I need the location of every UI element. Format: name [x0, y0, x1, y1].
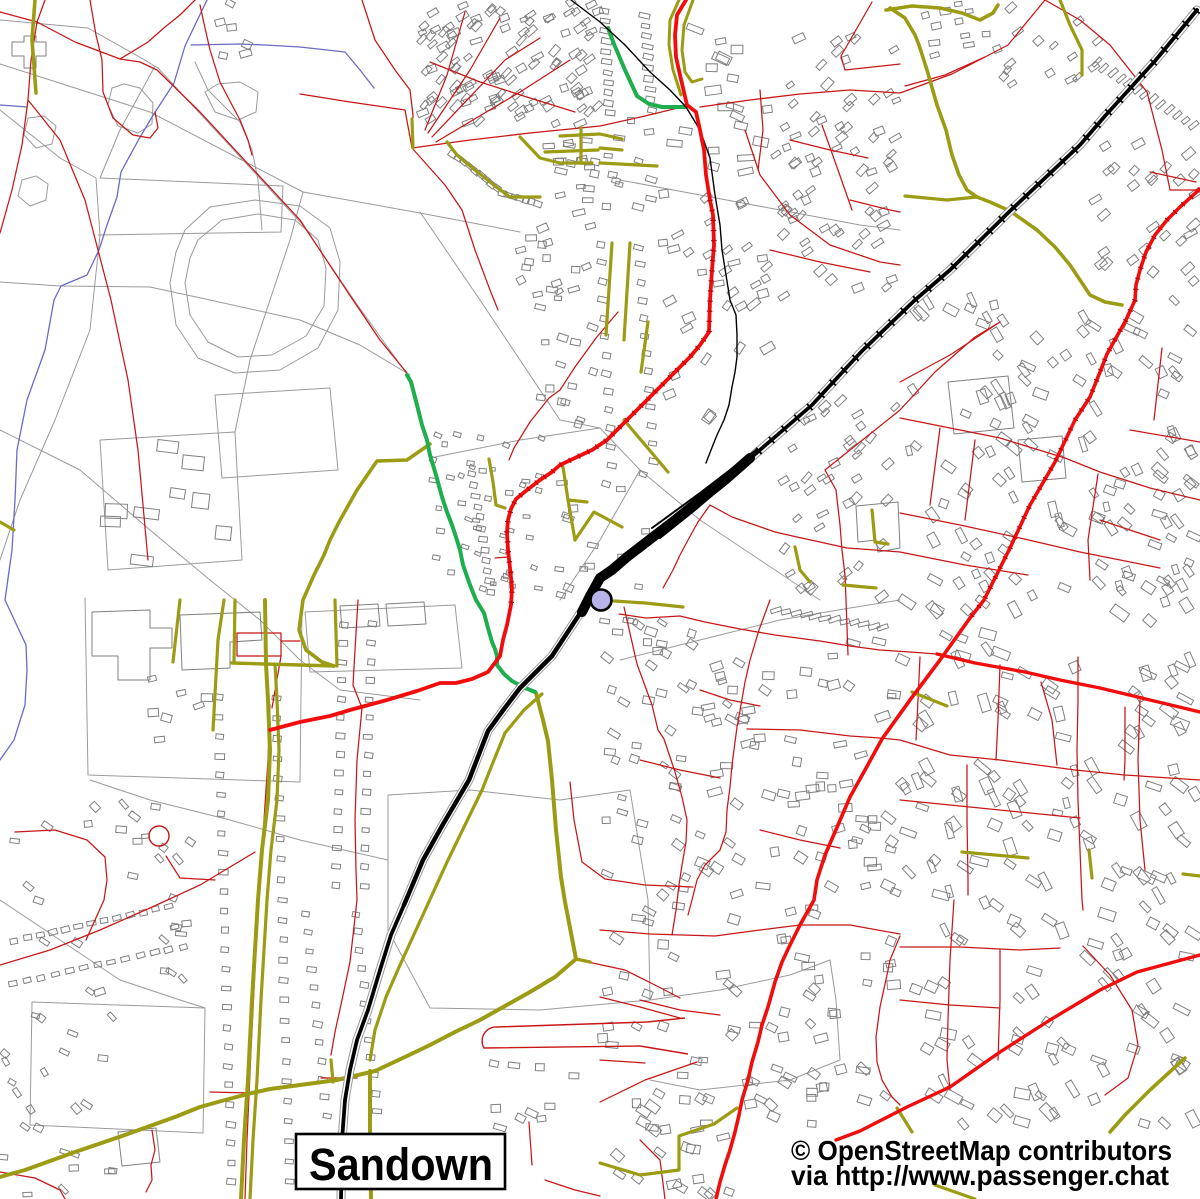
svg-text:Sandown: Sandown [309, 1139, 493, 1190]
svg-text:via http://www.passenger.chat: via http://www.passenger.chat [791, 1160, 1169, 1191]
